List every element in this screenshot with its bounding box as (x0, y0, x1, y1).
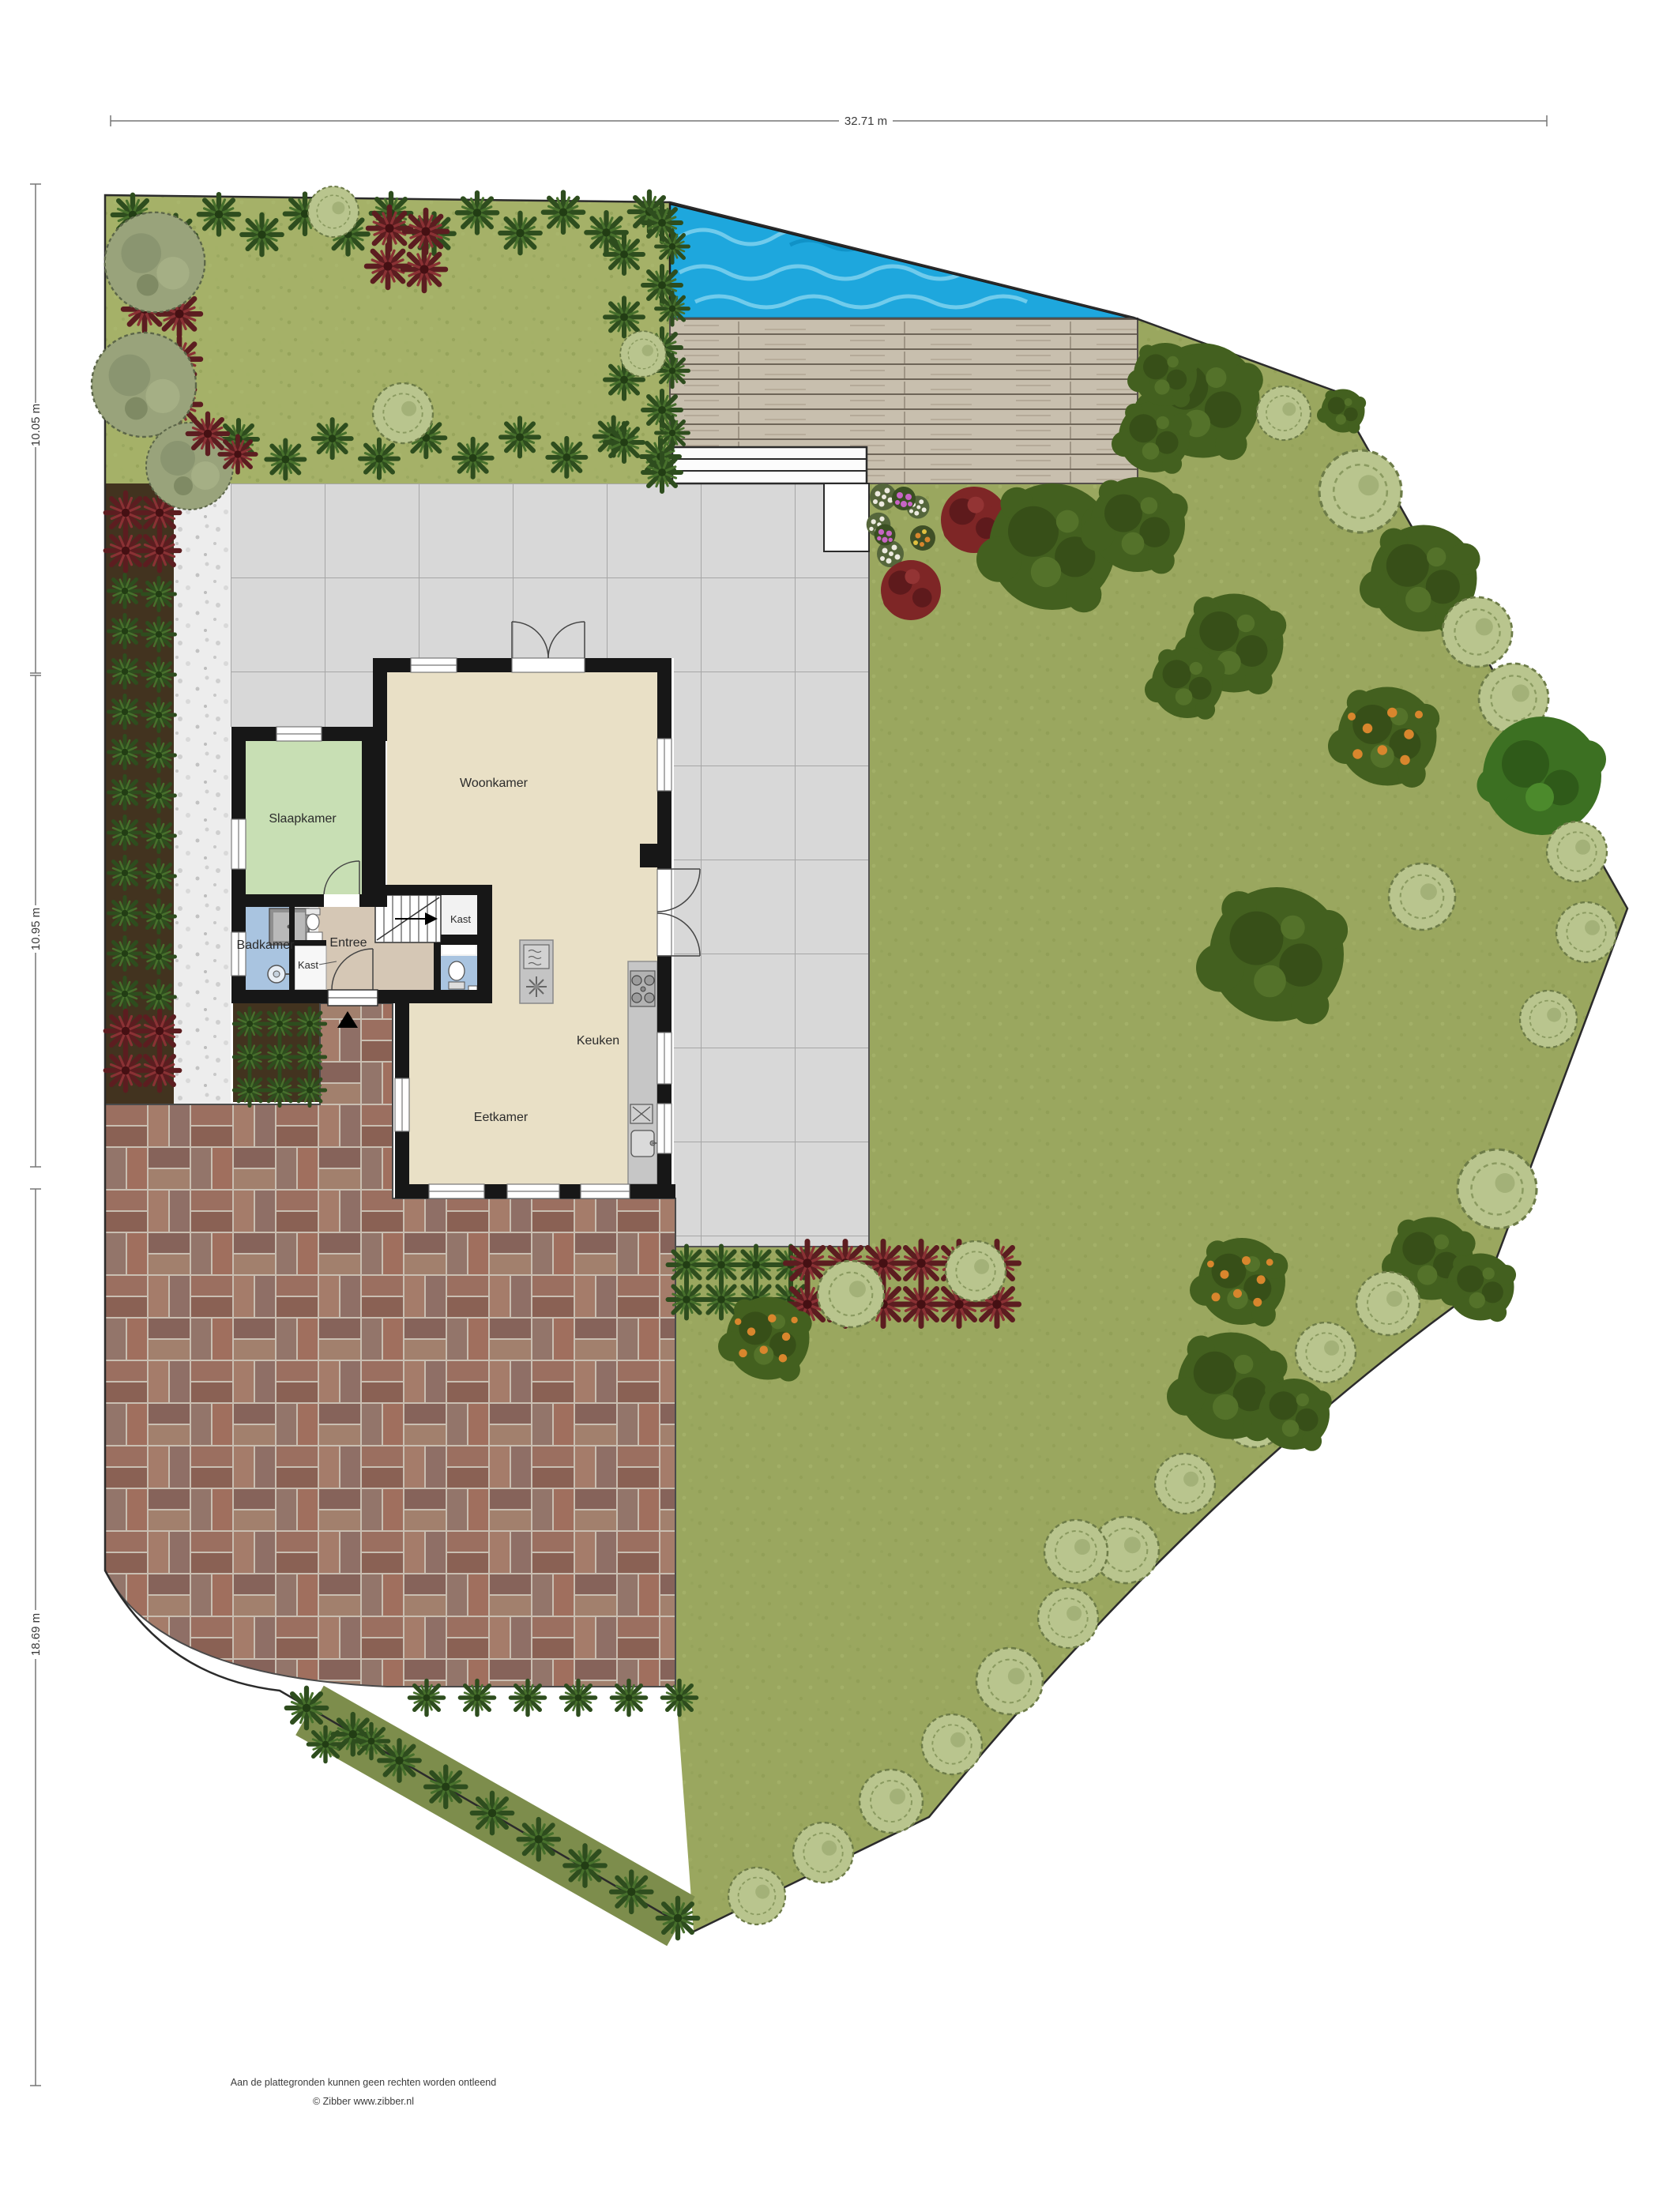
room-label-eetkamer: Eetkamer (474, 1111, 529, 1124)
shrub-plant (657, 1898, 698, 1939)
shrub-plant (142, 980, 175, 1014)
shrub-plant (518, 1819, 559, 1860)
room-eetkamer (409, 1003, 657, 1184)
shrub-plant (460, 1680, 495, 1716)
shrub-plant (108, 856, 141, 890)
shrub-red-plant (366, 244, 409, 288)
bush-light-plant (308, 186, 359, 237)
dimension-label-total-width: 32.71 m (845, 115, 887, 128)
shrub-plant (702, 1246, 740, 1284)
dimension-top (111, 115, 1547, 126)
bush-light-plant (976, 1648, 1043, 1714)
shrub-plant (198, 194, 239, 235)
entry-porch (328, 990, 378, 1006)
shrub-plant (656, 230, 689, 263)
shrub-plant (510, 1680, 546, 1716)
bush-light-plant (922, 1714, 982, 1774)
floorplan-canvas: Woonkamer Slaapkamer Badkamer Entree Kas… (0, 0, 1659, 2212)
shrub-plant (656, 292, 689, 325)
shrub-plant (142, 739, 175, 772)
bush-light-plant (728, 1868, 785, 1924)
bush-light-plant (1044, 1520, 1108, 1583)
shrub-plant (737, 1246, 775, 1284)
room-label-badkamer: Badkamer (237, 939, 295, 952)
tree-gray-plant (92, 333, 196, 437)
room-label-kast-badkamer: Kast (298, 959, 318, 971)
shrub-plant (565, 1845, 606, 1887)
shrub-plant (500, 213, 541, 254)
shrub-plant (308, 1727, 344, 1762)
shrub-plant (668, 1281, 705, 1319)
shrub-plant (611, 1680, 647, 1716)
shrub-plant (425, 1766, 466, 1808)
shrub-plant (453, 438, 492, 477)
bush-light-plant (373, 383, 433, 443)
shrub-red-plant (187, 413, 228, 454)
terrace-white-pad (824, 483, 869, 551)
shrub-plant (359, 439, 398, 478)
shrub-plant (108, 977, 141, 1010)
flower-pink-plant (875, 525, 896, 546)
shrub-plant (294, 1008, 326, 1040)
shrub-plant (264, 1041, 296, 1074)
shrub-plant (142, 860, 175, 893)
shrub-red-plant (220, 436, 257, 473)
shrub-plant (611, 1872, 652, 1913)
room-label-slaapkamer: Slaapkamer (269, 812, 337, 826)
shrub-red-plant (139, 530, 180, 571)
shrub-plant (142, 900, 175, 933)
deck-steps (672, 447, 867, 483)
bush-light-plant (620, 331, 666, 377)
shrub-plant (234, 1041, 266, 1074)
shrub-plant (354, 1724, 389, 1759)
shrub-plant (264, 1008, 296, 1040)
shrub-plant (108, 735, 141, 769)
bush-light-plant (860, 1770, 923, 1833)
shrub-plant (313, 419, 352, 457)
shrub-plant (286, 1687, 327, 1729)
bush-light-plant (1389, 863, 1455, 930)
shrub-plant (142, 658, 175, 691)
shrub-plant (142, 618, 175, 651)
shrub-plant (668, 1246, 705, 1284)
shrub-plant (142, 940, 175, 973)
shrub-plant (108, 897, 141, 930)
appliance-column (520, 940, 553, 1003)
shrub-plant (409, 1680, 445, 1716)
bush-light-plant (818, 1261, 884, 1327)
bush-light-plant (1038, 1588, 1098, 1648)
bush-light-plant (793, 1823, 853, 1883)
shrub-plant (108, 776, 141, 809)
shrub-plant (604, 423, 643, 461)
shrub-red-plant (402, 247, 446, 291)
shrub-plant (266, 440, 305, 479)
shrub-plant (642, 453, 681, 491)
shrub-plant (500, 418, 539, 457)
shrub-plant (662, 1680, 698, 1716)
shrub-plant (472, 1793, 513, 1834)
shrub-plant (604, 235, 643, 273)
shrub-plant (142, 698, 175, 732)
shrub-plant (108, 655, 141, 688)
shrub-plant (561, 1680, 596, 1716)
shrub-plant (547, 438, 586, 476)
shrub-plant (264, 1074, 296, 1107)
flower-orange-plant (910, 525, 935, 551)
small-appliance-icon (630, 1104, 653, 1123)
bush-light-plant (1458, 1149, 1537, 1228)
kitchen-counter (628, 961, 660, 1184)
shrub-plant (457, 192, 498, 233)
shrub-plant (108, 574, 141, 608)
shrub-plant (108, 937, 141, 970)
shrub-plant (142, 819, 175, 852)
shrub-plant (108, 816, 141, 849)
tree-gray-plant (105, 213, 205, 313)
shrub-plant (604, 298, 643, 337)
dimension-label-top-section: 10.05 m (29, 404, 43, 446)
shrub-plant (543, 192, 584, 233)
bush-light-plant (1520, 991, 1577, 1048)
footer-copyright: © Zibber www.zibber.nl (313, 2096, 414, 2107)
shrub-plant (108, 615, 141, 648)
shrub-red-plant (139, 1010, 180, 1051)
bush-light-plant (1547, 822, 1607, 882)
bush-light-plant (1257, 386, 1311, 440)
stove-icon (630, 971, 655, 1006)
shrub-plant (142, 577, 175, 611)
shrub-plant (294, 1041, 326, 1074)
shrub-plant (108, 695, 141, 728)
dimension-label-bottom-section: 18.69 m (29, 1613, 43, 1656)
floorplan-page: Woonkamer Slaapkamer Badkamer Entree Kas… (0, 0, 1659, 2212)
bush-light-plant (1296, 1322, 1356, 1382)
shrub-plant (379, 1740, 420, 1781)
shrub-plant (294, 1074, 326, 1107)
dimension-label-middle-section: 10.95 m (29, 908, 43, 950)
bush-light-plant (1356, 1272, 1420, 1335)
bush-light-plant (1319, 450, 1401, 532)
bush-light-plant (1155, 1454, 1215, 1514)
shrub-plant (142, 779, 175, 812)
bush-red-plant (881, 560, 941, 620)
shrub-plant (242, 214, 283, 255)
bush-light-plant (1443, 597, 1512, 667)
shrub-red-plant (139, 1050, 180, 1091)
room-label-woonkamer: Woonkamer (460, 777, 529, 790)
footer-disclaimer: Aan de plattegronden kunnen geen rechten… (231, 2077, 496, 2088)
flower-pink-plant (892, 487, 916, 510)
shrub-plant (656, 416, 689, 450)
bush-light-plant (1556, 902, 1616, 962)
room-label-kast-hal: Kast (450, 913, 471, 925)
room-label-keuken: Keuken (577, 1034, 619, 1048)
shrub-plant (234, 1008, 266, 1040)
gravel-path (174, 483, 231, 1104)
bush-light-plant (946, 1241, 1006, 1301)
shrub-plant (234, 1074, 266, 1107)
room-label-entree: Entree (329, 936, 367, 950)
